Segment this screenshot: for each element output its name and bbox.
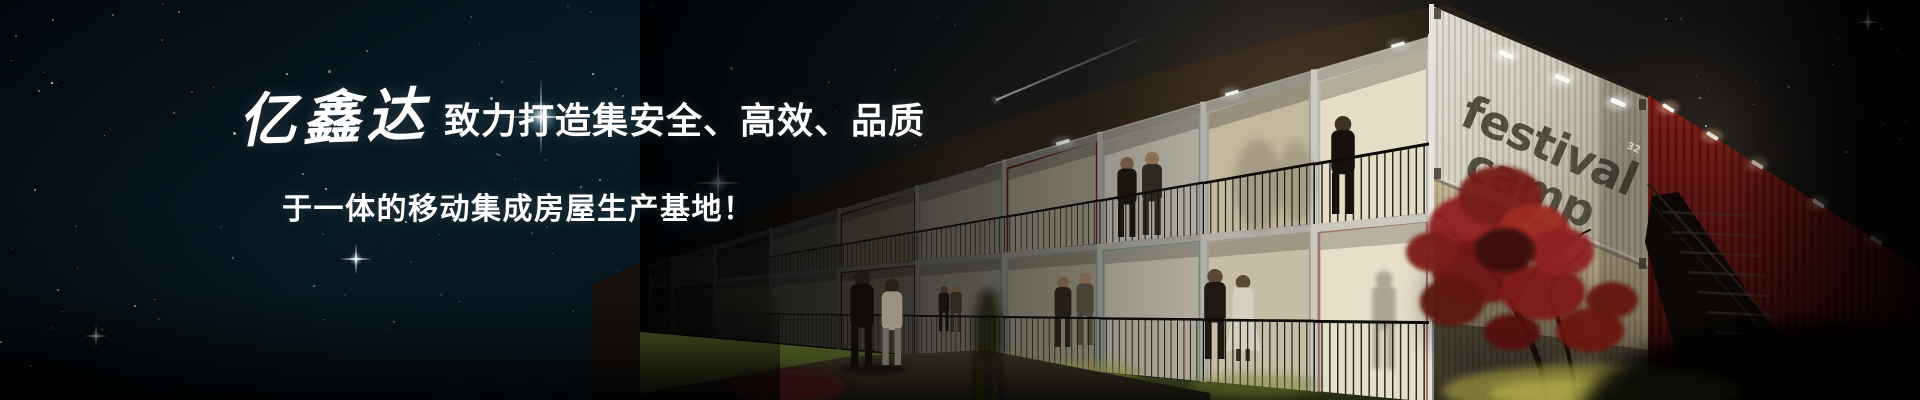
corner-casting	[1434, 168, 1441, 179]
balcony-shadow	[1234, 139, 1282, 231]
corner-casting	[1434, 8, 1441, 19]
bottom-left-vignette	[0, 280, 780, 400]
balcony-shadow	[1278, 140, 1314, 224]
container-camp-scene: festival camp	[0, 0, 1920, 400]
hero-banner: festival camp	[0, 0, 1920, 400]
